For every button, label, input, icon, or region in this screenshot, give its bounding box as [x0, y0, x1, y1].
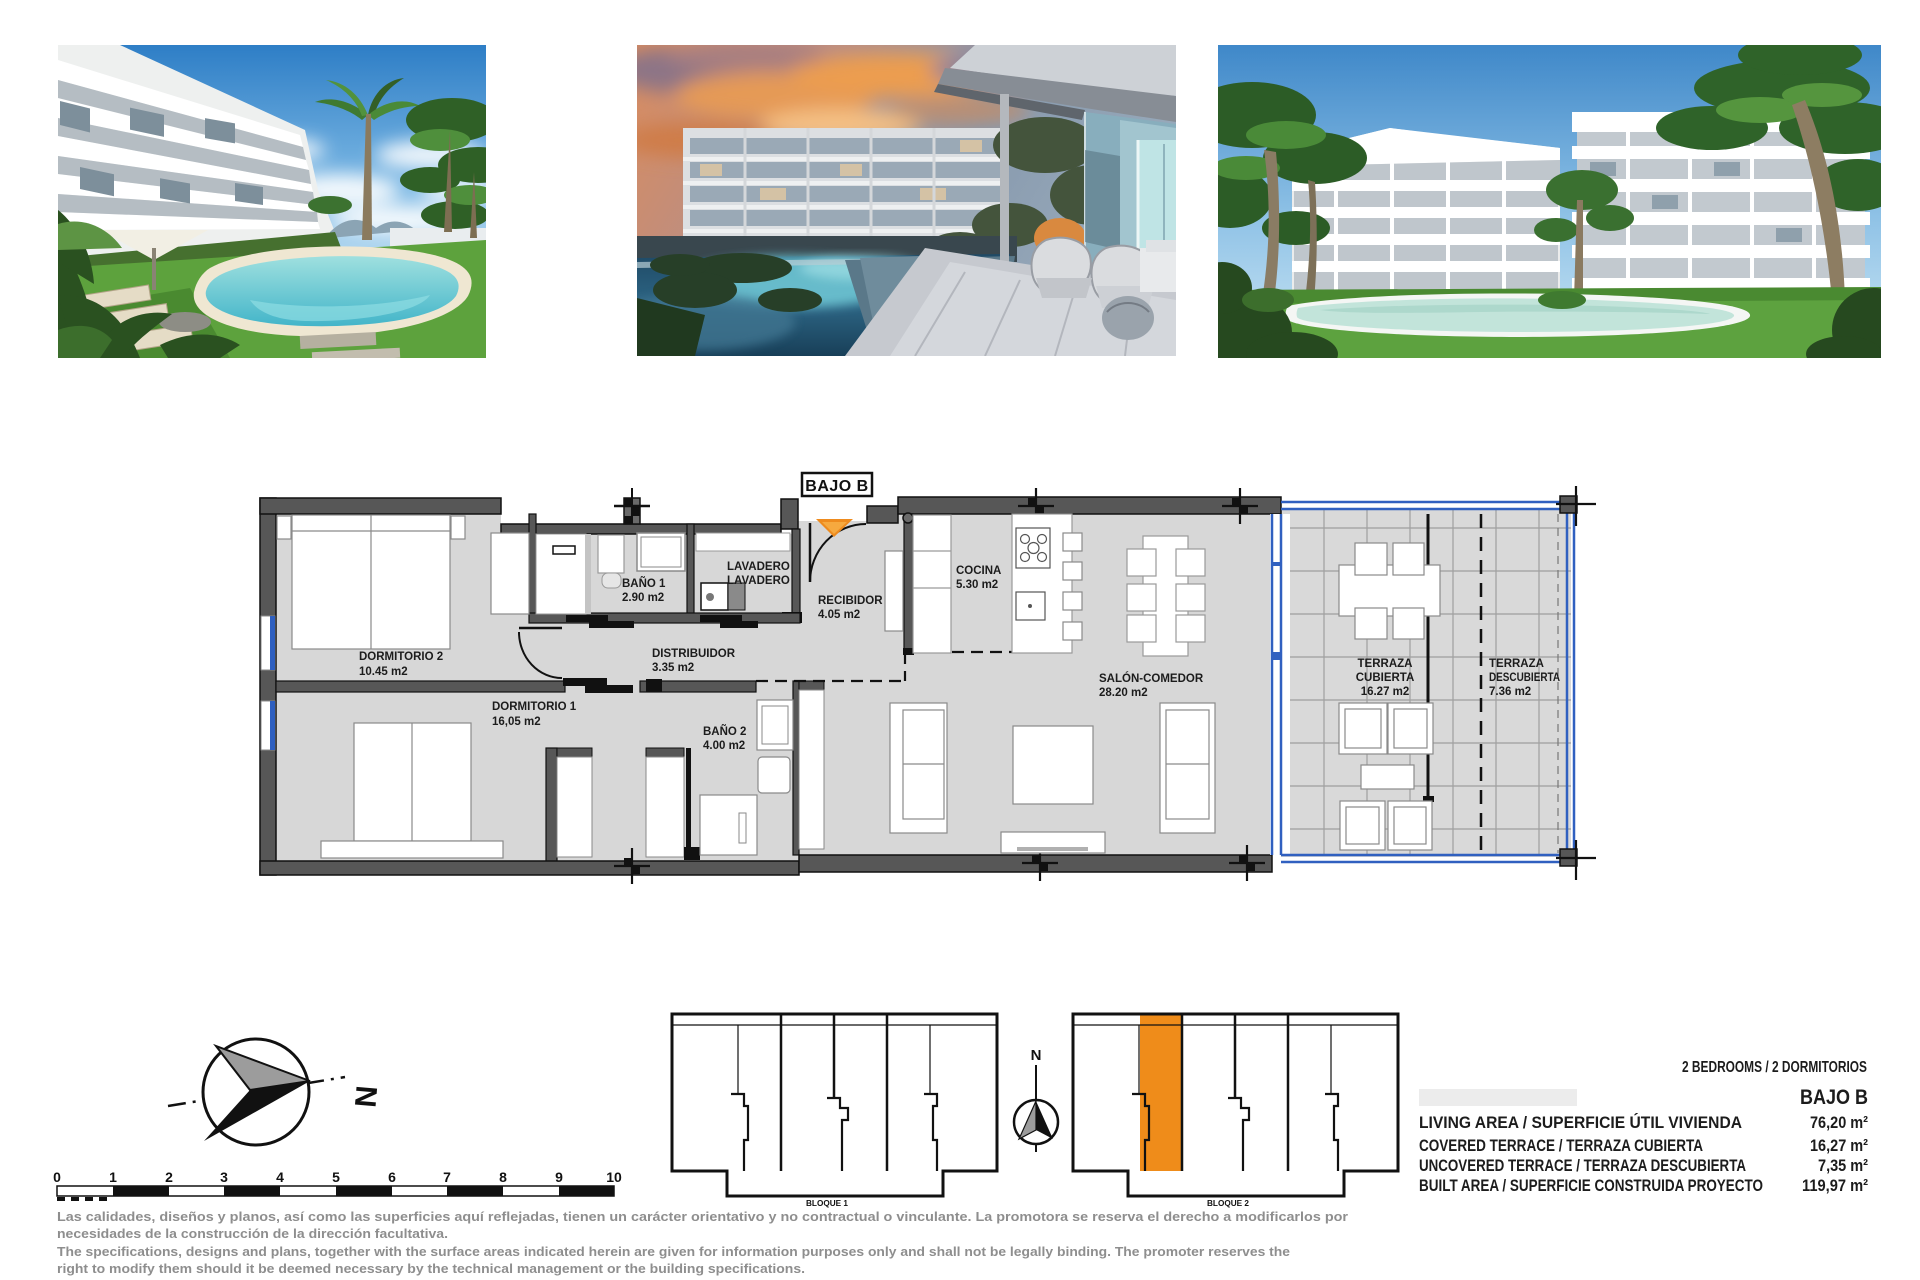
svg-text:10.45 m2: 10.45 m2 — [359, 666, 408, 678]
svg-text:DORMITORIO 2: DORMITORIO 2 — [359, 651, 443, 663]
svg-text:5: 5 — [332, 1169, 340, 1185]
svg-text:BLOQUE 1: BLOQUE 1 — [806, 1198, 848, 1208]
svg-text:N: N — [350, 1084, 385, 1108]
svg-text:TERRAZA: TERRAZA — [1358, 658, 1413, 670]
svg-text:DORMITORIO 1: DORMITORIO 1 — [492, 701, 577, 713]
svg-text:4.05 m2: 4.05 m2 — [818, 609, 860, 621]
svg-text:4: 4 — [276, 1169, 284, 1185]
svg-text:4.00 m2: 4.00 m2 — [703, 740, 745, 752]
svg-text:LAVADERO: LAVADERO — [727, 575, 790, 587]
svg-text:16.27 m2: 16.27 m2 — [1361, 686, 1410, 698]
svg-text:6: 6 — [388, 1169, 396, 1185]
svg-text:N: N — [1031, 1047, 1042, 1064]
svg-text:7.36 m2: 7.36 m2 — [1489, 686, 1531, 698]
svg-text:necesidades de la construcción: necesidades de la construcción de la dir… — [57, 1226, 448, 1241]
svg-text:BAÑO 1: BAÑO 1 — [622, 577, 666, 590]
svg-text:1: 1 — [109, 1169, 117, 1185]
svg-text:UNCOVERED TERRACE / TERRAZA DE: UNCOVERED TERRACE / TERRAZA DESCUBIERTA — [1419, 1157, 1746, 1175]
svg-text:RECIBIDOR: RECIBIDOR — [818, 595, 883, 607]
svg-text:10: 10 — [606, 1169, 622, 1185]
svg-text:3: 3 — [220, 1169, 228, 1185]
svg-text:7,35 m²: 7,35 m² — [1818, 1157, 1868, 1175]
svg-text:TERRAZA: TERRAZA — [1489, 658, 1544, 670]
svg-text:2.90 m2: 2.90 m2 — [622, 592, 664, 604]
svg-text:16,27 m²: 16,27 m² — [1810, 1137, 1868, 1155]
svg-text:DESCUBIERTA: DESCUBIERTA — [1489, 672, 1560, 684]
svg-text:BAJO B: BAJO B — [805, 478, 868, 495]
svg-text:BLOQUE 2: BLOQUE 2 — [1207, 1198, 1249, 1208]
svg-text:76,20 m²: 76,20 m² — [1810, 1114, 1868, 1132]
svg-text:The specifications, designs an: The specifications, designs and plans, t… — [57, 1244, 1290, 1259]
svg-text:28.20 m2: 28.20 m2 — [1099, 687, 1148, 699]
svg-text:BUILT AREA / SUPERFICIE CONSTR: BUILT AREA / SUPERFICIE CONSTRUIDA PROYE… — [1419, 1177, 1763, 1195]
svg-text:9: 9 — [555, 1169, 563, 1185]
svg-text:COVERED TERRACE / TERRAZA CUBI: COVERED TERRACE / TERRAZA CUBIERTA — [1419, 1137, 1703, 1155]
svg-text:2 BEDROOMS / 2 DORMITORIOS: 2 BEDROOMS / 2 DORMITORIOS — [1682, 1059, 1867, 1076]
svg-text:119,97 m²: 119,97 m² — [1802, 1177, 1868, 1195]
svg-text:2: 2 — [165, 1169, 173, 1185]
svg-text:BAJO B: BAJO B — [1800, 1086, 1868, 1109]
svg-text:LAVADERO: LAVADERO — [727, 561, 790, 573]
svg-text:0: 0 — [53, 1169, 61, 1185]
svg-text:16,05 m2: 16,05 m2 — [492, 716, 541, 728]
svg-text:COCINA: COCINA — [956, 565, 1001, 577]
svg-text:SALÓN-COMEDOR: SALÓN-COMEDOR — [1099, 672, 1204, 685]
svg-text:CUBIERTA: CUBIERTA — [1356, 672, 1415, 684]
svg-text:LIVING AREA / SUPERFICIE ÚTIL: LIVING AREA / SUPERFICIE ÚTIL VIVIENDA — [1419, 1113, 1742, 1132]
svg-text:8: 8 — [499, 1169, 507, 1185]
svg-text:7: 7 — [443, 1169, 451, 1185]
svg-text:Las calidades, diseños y plano: Las calidades, diseños y planos, así com… — [57, 1209, 1348, 1224]
svg-text:3.35 m2: 3.35 m2 — [652, 662, 694, 674]
svg-text:5.30 m2: 5.30 m2 — [956, 579, 998, 591]
svg-text:DISTRIBUIDOR: DISTRIBUIDOR — [652, 648, 736, 660]
svg-text:BAÑO 2: BAÑO 2 — [703, 725, 746, 738]
svg-text:right to modify them should it: right to modify them should it be deemed… — [57, 1261, 805, 1276]
